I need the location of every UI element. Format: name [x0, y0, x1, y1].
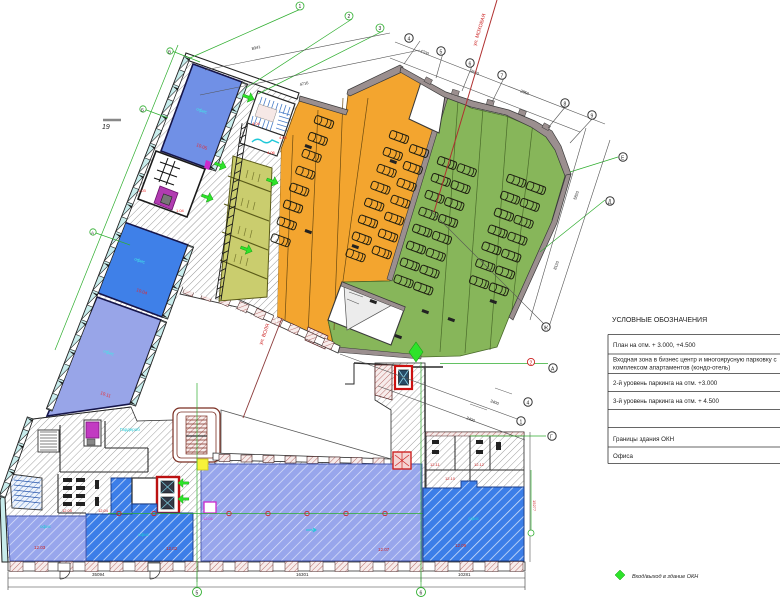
svg-text:2: 2 [348, 14, 351, 20]
svg-text:5: 5 [196, 591, 199, 597]
svg-text:12.11: 12.11 [430, 462, 440, 467]
svg-text:6: 6 [420, 591, 423, 597]
svg-text:Границы здания ОКН: Границы здания ОКН [613, 436, 674, 443]
svg-text:9: 9 [591, 114, 594, 120]
svg-text:8: 8 [564, 102, 567, 108]
svg-text:15277: 15277 [532, 500, 537, 512]
svg-text:УСЛОВНЫЕ ОБОЗНАЧЕНИЯ: УСЛОВНЫЕ ОБОЗНАЧЕНИЯ [612, 317, 707, 324]
svg-text:4.06: 4.06 [267, 150, 276, 155]
svg-text:2: 2 [530, 361, 533, 367]
svg-text:Офиса: Офиса [613, 453, 633, 460]
svg-text:7: 7 [501, 74, 504, 80]
svg-text:12.07: 12.07 [378, 547, 390, 552]
svg-text:офис: офис [138, 532, 150, 537]
svg-text:12.12: 12.12 [474, 462, 485, 467]
svg-text:5: 5 [440, 50, 443, 56]
svg-text:10281: 10281 [458, 572, 471, 577]
svg-text:12.09: 12.09 [455, 543, 467, 548]
svg-text:1: 1 [299, 4, 302, 10]
svg-text:Ж: Ж [544, 326, 549, 332]
svg-text:А: А [91, 231, 94, 236]
svg-text:офис: офис [40, 524, 52, 529]
svg-text:4.04: 4.04 [252, 121, 261, 126]
svg-text:3: 3 [379, 26, 382, 32]
svg-text:12.01: 12.01 [203, 516, 214, 521]
svg-text:1.04: 1.04 [176, 208, 185, 213]
svg-text:12.02: 12.02 [166, 546, 178, 551]
svg-text:Гардероб: Гардероб [120, 427, 140, 432]
svg-text:Б: Б [141, 108, 144, 113]
svg-text:4: 4 [408, 37, 411, 43]
svg-text:офис: офис [468, 516, 480, 521]
svg-text:План на отм. + 3.000, +4.500: План на отм. + 3.000, +4.500 [613, 342, 696, 349]
svg-text:12.03: 12.03 [34, 545, 46, 550]
svg-text:12.05: 12.05 [62, 508, 73, 513]
svg-text:4: 4 [527, 401, 530, 407]
svg-text:3-й уровень паркинга на отм. +: 3-й уровень паркинга на отм. + 4.500 [613, 398, 719, 405]
svg-text:2-й уровень паркинга на отм. +: 2-й уровень паркинга на отм. +3.000 [613, 380, 718, 387]
svg-text:35094: 35094 [92, 572, 105, 577]
svg-text:16301: 16301 [296, 572, 309, 577]
svg-text:комплексом апартаментов (кондо: комплексом апартаментов (кондо-отель) [613, 365, 730, 372]
svg-text:19: 19 [102, 124, 110, 131]
svg-text:Вход/выход в здание ОКН: Вход/выход в здание ОКН [632, 574, 698, 580]
svg-text:6: 6 [469, 62, 472, 68]
svg-text:1: 1 [520, 420, 523, 426]
svg-text:4.05: 4.05 [279, 135, 288, 140]
svg-text:В: В [168, 50, 171, 55]
svg-text:12.04: 12.04 [98, 508, 109, 513]
svg-text:Входная зона в бизнес центр и: Входная зона в бизнес центр и многоярусн… [613, 357, 777, 364]
svg-text:Г: Г [550, 435, 553, 441]
svg-text:12.10: 12.10 [445, 476, 456, 481]
